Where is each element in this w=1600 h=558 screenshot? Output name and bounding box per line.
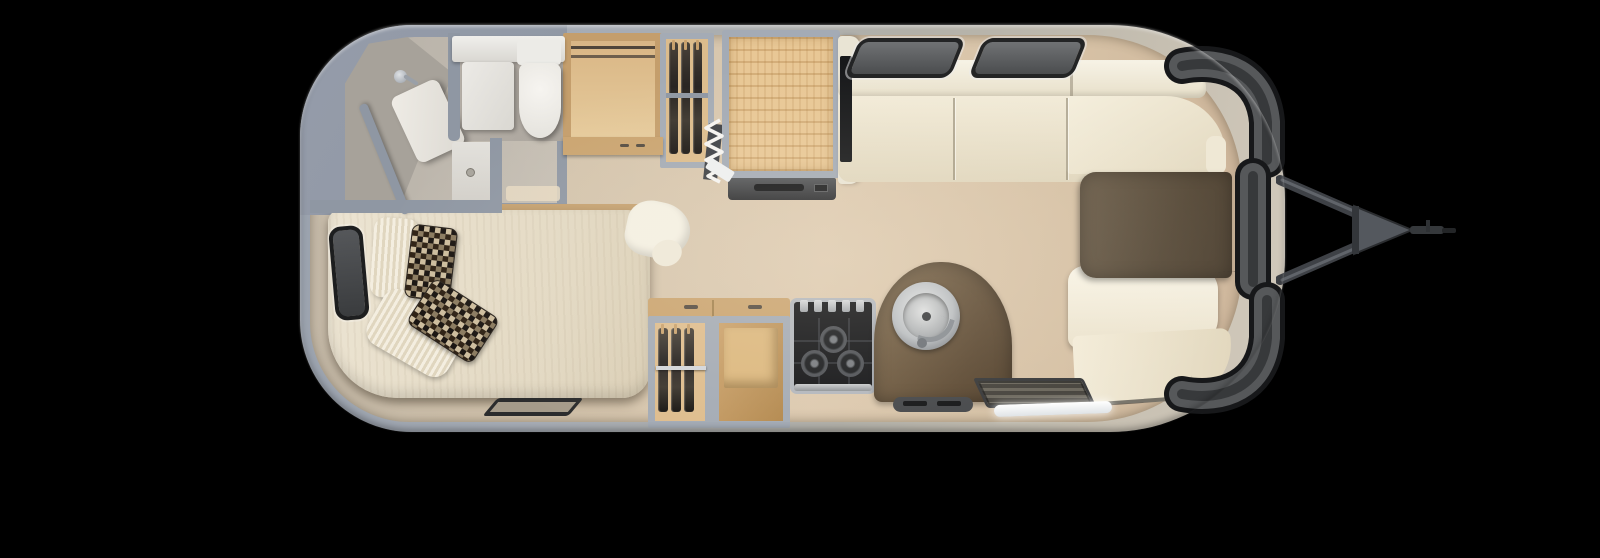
drawer-handle-icon <box>620 144 629 147</box>
stove-knob-icon <box>842 300 850 312</box>
cabinet-handle-icon <box>748 305 762 309</box>
burner-icon <box>801 350 828 377</box>
dinette-corner-cushion <box>1066 96 1226 174</box>
hanging-clothes-icon <box>684 328 694 412</box>
floor-vent <box>482 398 583 416</box>
burner-icon <box>837 350 864 377</box>
wardrobe-rod <box>571 55 655 58</box>
hanger-hook-icon <box>661 324 664 334</box>
drawer-handle-icon <box>636 144 645 147</box>
refrigerator <box>722 30 840 178</box>
countertop-seam <box>712 300 714 316</box>
roadside-window-2 <box>968 38 1088 78</box>
bench-shadow-line <box>1181 269 1267 412</box>
oven-handle <box>794 384 872 391</box>
vanity-cabinet <box>462 62 514 130</box>
hanger-hook-icon <box>674 324 677 334</box>
hanging-clothes-icon <box>671 328 681 412</box>
wardrobe-rod <box>571 46 655 49</box>
hanger-hook-icon <box>696 40 699 50</box>
bathroom-step <box>506 186 560 201</box>
vent-slot-icon <box>754 184 804 191</box>
toilet <box>519 63 561 138</box>
hanging-clothes-icon <box>669 42 678 154</box>
vent-slot-icon <box>937 401 961 406</box>
stove-knob-icon <box>800 300 808 312</box>
toilet-tank <box>517 40 561 65</box>
open-cabinet-interior <box>724 328 778 388</box>
roadside-window-1 <box>844 38 966 78</box>
hanging-clothes-icon <box>658 328 668 412</box>
cushion-seam <box>1066 98 1068 180</box>
hanger-hook-icon <box>687 324 690 334</box>
cabinet-handle-icon <box>684 305 698 309</box>
stove-knob-icon <box>814 300 822 312</box>
burner-icon <box>820 326 847 353</box>
wardrobe-drawer <box>563 137 663 155</box>
cabinet-knob-icon <box>466 168 475 177</box>
cushion-seam <box>953 98 955 180</box>
cabinet-countertop <box>648 298 790 318</box>
vent-slot-icon <box>903 401 927 406</box>
hanger-hook-icon <box>672 40 675 50</box>
faucet-base-icon <box>917 338 927 348</box>
dinette-side-cushion <box>1206 136 1226 174</box>
stove-knob-icon <box>828 300 836 312</box>
hanging-clothes-icon <box>681 42 690 154</box>
hitch-icon <box>1276 168 1456 292</box>
closet-rod <box>656 366 706 370</box>
floorplan-stage <box>0 0 1600 558</box>
bathroom-wall <box>310 200 502 213</box>
stove-knob-icon <box>856 300 864 312</box>
vent-button-icon <box>814 184 828 192</box>
dinette-table <box>1080 172 1232 278</box>
hanger-hook-icon <box>684 40 687 50</box>
bathroom-doorway-wall <box>490 138 502 213</box>
closet-shelf <box>666 93 708 98</box>
